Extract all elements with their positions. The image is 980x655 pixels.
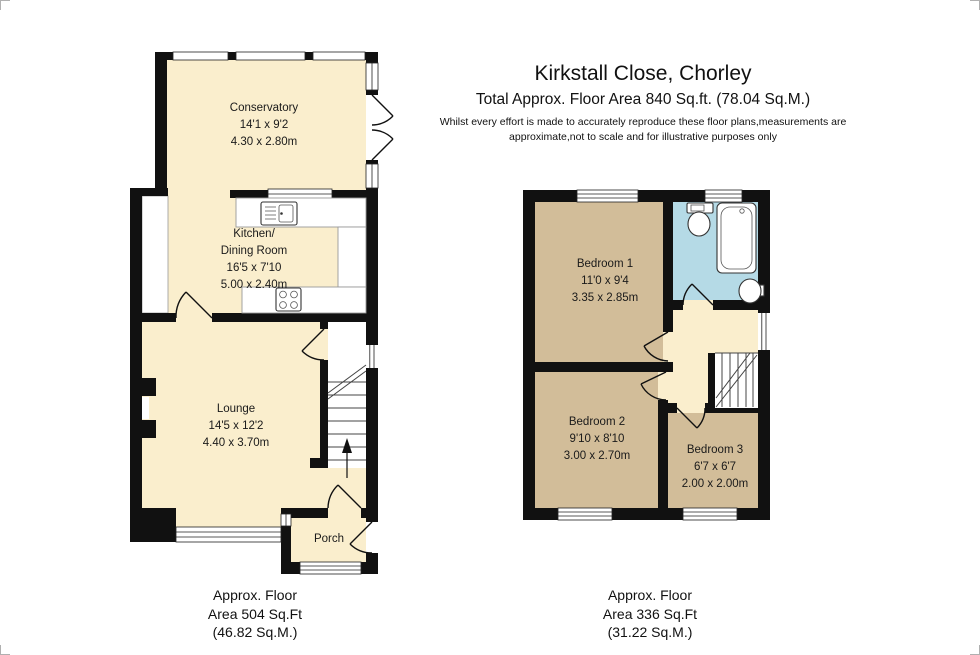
ground-floor-caption: Approx. Floor Area 504 Sq.Ft (46.82 Sq.M… bbox=[155, 586, 355, 642]
disclaimer: Whilst every effort is made to accuratel… bbox=[343, 115, 943, 145]
first-floor-caption: Approx. Floor Area 336 Sq.Ft (31.22 Sq.M… bbox=[550, 586, 750, 642]
conservatory-imperial: 14'1 x 9'2 bbox=[240, 119, 289, 131]
bedroom3-imperial: 6'7 x 6'7 bbox=[694, 461, 736, 473]
conservatory-window-2 bbox=[236, 52, 305, 60]
kitchen-label-line2: Dining Room bbox=[221, 245, 287, 257]
kitchen-imperial: 16'5 x 7'10 bbox=[227, 262, 282, 274]
crop-mark-bottom-left bbox=[0, 645, 10, 655]
page-title: Kirkstall Close, Chorley bbox=[343, 62, 943, 86]
bathtub-icon bbox=[717, 203, 756, 273]
kitchen-sink-icon bbox=[261, 202, 297, 225]
bedroom1-metric: 3.35 x 2.85m bbox=[572, 292, 638, 304]
staircase-first bbox=[715, 353, 758, 408]
fireplace-recess bbox=[142, 397, 149, 419]
conservatory-label: Conservatory bbox=[230, 102, 299, 114]
conservatory-metric: 4.30 x 2.80m bbox=[231, 136, 297, 148]
bedroom2-window bbox=[558, 508, 612, 520]
header: Kirkstall Close, Chorley Total Approx. F… bbox=[343, 62, 943, 145]
stair-side-wall bbox=[708, 353, 715, 408]
hall-window bbox=[366, 345, 378, 368]
ground-caption-line2: Area 504 Sq.Ft bbox=[155, 605, 355, 624]
kitchen-label-line1: Kitchen/ bbox=[233, 228, 275, 240]
first-caption-line1: Approx. Floor bbox=[550, 586, 750, 605]
bedroom1-window bbox=[577, 190, 638, 202]
lounge-label: Lounge bbox=[217, 403, 255, 415]
floorplan-page: Kirkstall Close, Chorley Total Approx. F… bbox=[0, 0, 980, 655]
chimney-breast-upper bbox=[142, 378, 156, 396]
ground-caption-line3: (46.82 Sq.M.) bbox=[155, 623, 355, 642]
bedroom3-label: Bedroom 3 bbox=[687, 444, 743, 456]
bedroom3-metric: 2.00 x 2.00m bbox=[682, 478, 748, 490]
disclaimer-line2: approximate,not to scale and for illustr… bbox=[343, 130, 943, 145]
kitchen-side-recess bbox=[142, 196, 168, 313]
total-area-subtitle: Total Approx. Floor Area 840 Sq.ft. (78.… bbox=[343, 91, 943, 109]
ground-floor-plan: Conservatory 14'1 x 9'2 4.30 x 2.80m Kit… bbox=[125, 35, 397, 580]
conservatory-window-3 bbox=[313, 52, 365, 60]
ground-caption-line1: Approx. Floor bbox=[155, 586, 355, 605]
bedroom2-label: Bedroom 2 bbox=[569, 416, 625, 428]
first-caption-line3: (31.22 Sq.M.) bbox=[550, 623, 750, 642]
landing-window bbox=[758, 313, 770, 350]
lounge-metric: 4.40 x 3.70m bbox=[203, 437, 269, 449]
worktop-top bbox=[236, 198, 366, 227]
bedroom2-metric: 3.00 x 2.70m bbox=[564, 450, 630, 462]
first-caption-line2: Area 336 Sq.Ft bbox=[550, 605, 750, 624]
bedroom2-imperial: 9'10 x 8'10 bbox=[570, 433, 625, 445]
bedroom3-window bbox=[683, 508, 737, 520]
chimney-breast-lower bbox=[142, 420, 156, 438]
crop-mark-bottom-right bbox=[970, 645, 980, 655]
lounge-window bbox=[176, 527, 281, 542]
porch-window bbox=[300, 562, 361, 574]
bathroom-window bbox=[705, 190, 742, 202]
bedroom1-imperial: 11'0 x 9'4 bbox=[581, 275, 629, 287]
bedroom1-label: Bedroom 1 bbox=[577, 258, 633, 270]
kitchen-metric: 5.00 x 2.40m bbox=[221, 279, 287, 291]
conservatory-window-1 bbox=[173, 52, 228, 60]
disclaimer-line1: Whilst every effort is made to accuratel… bbox=[343, 115, 943, 130]
porch-label: Porch bbox=[314, 533, 344, 545]
lounge-imperial: 14'5 x 12'2 bbox=[209, 420, 264, 432]
hob-icon bbox=[276, 288, 301, 311]
crop-mark-top-left bbox=[0, 0, 10, 10]
first-floor-plan: Bedroom 1 11'0 x 9'4 3.35 x 2.85m Bedroo… bbox=[518, 185, 776, 525]
worktop-right bbox=[338, 227, 366, 287]
crop-mark-top-right bbox=[970, 0, 980, 10]
french-door-opening bbox=[366, 95, 378, 160]
